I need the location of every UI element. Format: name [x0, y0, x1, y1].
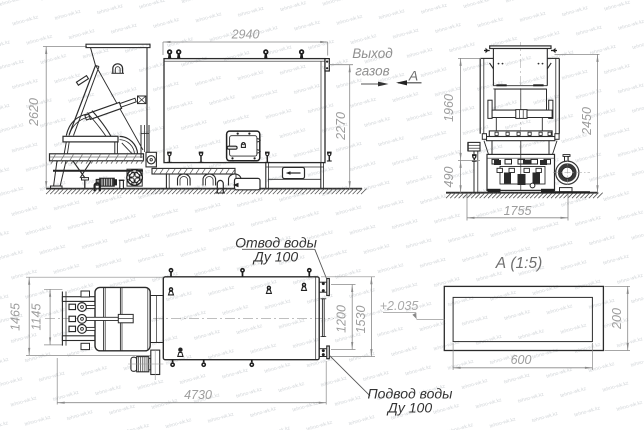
svg-text:2620: 2620: [27, 98, 41, 127]
svg-text:600: 600: [511, 353, 532, 367]
svg-text:Ду 100: Ду 100: [252, 249, 298, 265]
svg-text:А: А: [408, 68, 418, 84]
svg-text:А (1:5): А (1:5): [495, 255, 543, 272]
svg-text:+2.035: +2.035: [380, 299, 419, 313]
svg-text:4730: 4730: [184, 388, 212, 402]
svg-text:1960: 1960: [442, 94, 456, 122]
svg-text:2270: 2270: [334, 112, 348, 141]
svg-text:1200: 1200: [335, 305, 349, 333]
svg-text:1465: 1465: [9, 303, 23, 331]
svg-text:2450: 2450: [580, 107, 594, 136]
svg-text:2940: 2940: [231, 28, 260, 42]
svg-text:200: 200: [610, 308, 624, 330]
svg-text:Выход: Выход: [352, 46, 393, 61]
svg-text:490: 490: [442, 167, 456, 188]
svg-text:Ду 100: Ду 100: [386, 400, 432, 416]
svg-text:1530: 1530: [354, 306, 368, 334]
svg-text:1755: 1755: [504, 204, 532, 218]
svg-text:газов: газов: [355, 64, 389, 79]
svg-text:1145: 1145: [30, 304, 44, 331]
